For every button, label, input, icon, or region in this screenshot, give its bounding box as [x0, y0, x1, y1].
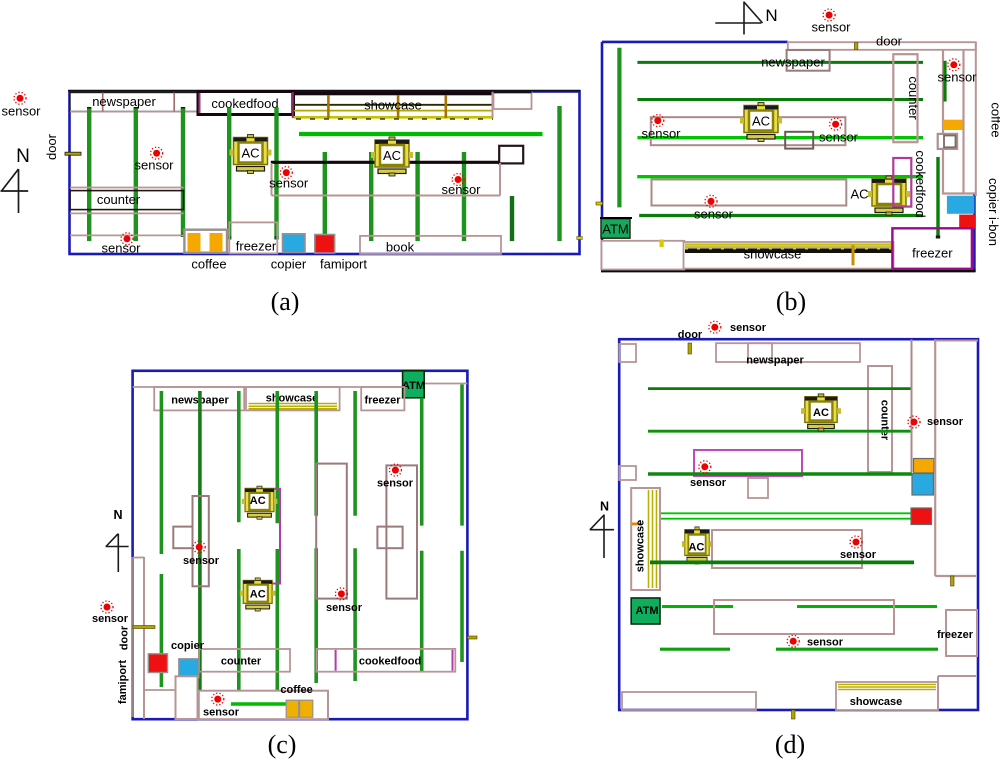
svg-text:sensor: sensor: [811, 20, 851, 35]
svg-text:sensor: sensor: [937, 70, 977, 85]
svg-text:sensor: sensor: [690, 477, 727, 489]
svg-text:coffee: coffee: [280, 684, 312, 696]
svg-text:AC: AC: [383, 148, 401, 163]
svg-text:freezer: freezer: [937, 629, 974, 641]
svg-text:freezer: freezer: [364, 395, 401, 407]
svg-text:famiport: famiport: [320, 257, 367, 272]
svg-text:sensor: sensor: [377, 478, 414, 490]
svg-text:freezer: freezer: [912, 246, 953, 261]
svg-text:cookedfood: cookedfood: [913, 150, 928, 217]
svg-text:(a): (a): [271, 287, 300, 316]
svg-text:ATM: ATM: [635, 605, 658, 617]
svg-text:AC: AC: [688, 542, 704, 554]
svg-text:showcase: showcase: [266, 393, 319, 405]
svg-text:sensor: sensor: [134, 158, 174, 173]
svg-text:newspaper: newspaper: [761, 55, 825, 70]
svg-text:sensor: sensor: [203, 707, 240, 719]
svg-text:sensor: sensor: [101, 241, 141, 256]
svg-text:door: door: [118, 625, 130, 650]
svg-text:cookedfood: cookedfood: [359, 656, 421, 668]
svg-text:door: door: [876, 34, 903, 49]
svg-text:sensor: sensor: [1, 104, 41, 119]
svg-text:ATM: ATM: [602, 222, 628, 237]
svg-text:sensor: sensor: [641, 126, 681, 141]
svg-text:showcase: showcase: [635, 520, 647, 573]
svg-text:N: N: [765, 6, 777, 25]
svg-text:AC: AC: [250, 495, 266, 507]
svg-text:sensor: sensor: [326, 602, 363, 614]
svg-text:ATM: ATM: [402, 380, 425, 392]
svg-text:copier: copier: [271, 257, 307, 272]
svg-text:showcase: showcase: [850, 696, 903, 708]
svg-text:counter: counter: [97, 192, 141, 207]
svg-text:door: door: [44, 133, 59, 160]
svg-text:AC: AC: [813, 407, 829, 419]
svg-text:(c): (c): [268, 730, 297, 759]
svg-text:book: book: [386, 240, 415, 255]
svg-text:AC: AC: [752, 114, 770, 129]
svg-text:(b): (b): [776, 287, 806, 316]
svg-text:freezer: freezer: [236, 239, 277, 254]
svg-text:N: N: [16, 146, 30, 167]
svg-text:showcase: showcase: [744, 247, 802, 262]
svg-text:counter: counter: [221, 656, 262, 668]
svg-text:AC: AC: [250, 589, 266, 601]
svg-text:sensor: sensor: [807, 637, 844, 649]
svg-text:(d): (d): [775, 730, 805, 759]
svg-text:coffee: coffee: [191, 257, 226, 272]
svg-text:counter: counter: [906, 76, 921, 120]
svg-text:sensor: sensor: [92, 613, 129, 625]
svg-text:newspaper: newspaper: [746, 355, 804, 367]
svg-text:N: N: [600, 500, 609, 514]
svg-text:sensor: sensor: [840, 549, 877, 561]
svg-text:sensor: sensor: [927, 416, 964, 428]
svg-text:sensor: sensor: [183, 555, 220, 567]
svg-text:door: door: [678, 329, 703, 341]
svg-text:coffee: coffee: [988, 102, 1000, 137]
svg-text:N: N: [113, 508, 122, 522]
svg-text:AC: AC: [850, 187, 868, 202]
svg-text:copier i-bon: copier i-bon: [986, 178, 1000, 246]
svg-text:sensor: sensor: [269, 176, 309, 191]
svg-text:counter: counter: [879, 400, 891, 441]
svg-text:cookedfood: cookedfood: [211, 96, 278, 111]
svg-text:sensor: sensor: [730, 322, 767, 334]
svg-text:sensor: sensor: [694, 207, 734, 222]
svg-text:newspaper: newspaper: [92, 94, 156, 109]
svg-text:sensor: sensor: [441, 182, 481, 197]
svg-text:copier: copier: [171, 640, 205, 652]
svg-text:showcase: showcase: [364, 98, 422, 113]
svg-text:sensor: sensor: [819, 130, 859, 145]
svg-text:AC: AC: [241, 146, 259, 161]
svg-text:famiport: famiport: [117, 660, 129, 704]
